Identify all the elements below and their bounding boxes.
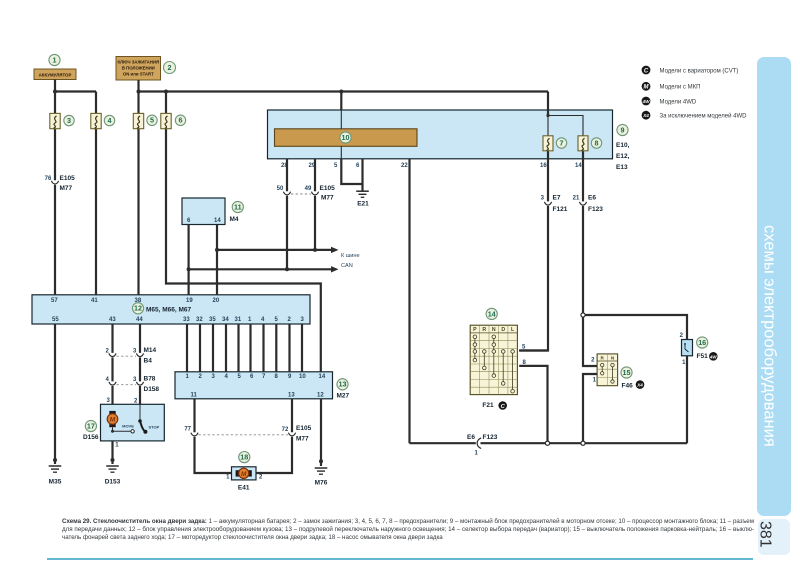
svg-text:1: 1 bbox=[53, 55, 57, 64]
svg-text:M76: M76 bbox=[315, 480, 328, 487]
svg-text:4: 4 bbox=[108, 116, 112, 125]
svg-text:13: 13 bbox=[288, 393, 295, 399]
svg-text:F123: F123 bbox=[588, 206, 603, 213]
svg-text:M14: M14 bbox=[144, 347, 157, 354]
svg-text:13: 13 bbox=[339, 380, 347, 389]
svg-text:15: 15 bbox=[623, 368, 631, 377]
svg-text:19: 19 bbox=[186, 298, 193, 304]
svg-text:E105: E105 bbox=[320, 185, 336, 192]
svg-text:M4: M4 bbox=[230, 216, 239, 223]
svg-text:P: P bbox=[473, 327, 477, 333]
svg-text:чатель фонарей света заднего х: чатель фонарей света заднего хода; 17 – … bbox=[62, 534, 443, 541]
svg-text:MOVE: MOVE bbox=[122, 424, 134, 429]
svg-text:11: 11 bbox=[234, 202, 242, 211]
svg-text:2: 2 bbox=[168, 63, 172, 72]
svg-text:M27: M27 bbox=[337, 393, 350, 400]
svg-text:D: D bbox=[501, 327, 505, 333]
svg-text:17: 17 bbox=[87, 421, 95, 430]
svg-text:4W: 4W bbox=[642, 99, 651, 104]
svg-text:44: 44 bbox=[136, 317, 143, 323]
svg-text:STOP: STOP bbox=[149, 425, 160, 430]
svg-text:33: 33 bbox=[183, 317, 190, 323]
svg-text:M77: M77 bbox=[296, 435, 309, 442]
svg-text:E41: E41 bbox=[238, 485, 250, 492]
svg-text:схемы электрооборудования: схемы электрооборудования bbox=[761, 225, 779, 447]
svg-text:57: 57 bbox=[51, 298, 58, 304]
svg-text:X4: X4 bbox=[636, 383, 643, 388]
svg-text:49: 49 bbox=[305, 186, 312, 192]
svg-text:16: 16 bbox=[540, 163, 547, 169]
svg-text:E105: E105 bbox=[60, 175, 76, 182]
svg-text:5: 5 bbox=[150, 116, 154, 125]
svg-text:C: C bbox=[644, 68, 649, 74]
svg-text:CAN: CAN bbox=[341, 263, 353, 269]
svg-text:B78: B78 bbox=[144, 375, 156, 382]
svg-text:E10,: E10, bbox=[616, 142, 630, 149]
svg-text:E105: E105 bbox=[296, 425, 312, 432]
svg-text:D153: D153 bbox=[105, 479, 121, 486]
svg-text:E6: E6 bbox=[467, 434, 475, 441]
svg-text:72: 72 bbox=[282, 427, 289, 433]
svg-text:E13: E13 bbox=[616, 164, 628, 171]
svg-text:В ПОЛОЖЕНИИ: В ПОЛОЖЕНИИ bbox=[122, 66, 155, 71]
svg-text:21: 21 bbox=[573, 195, 580, 201]
svg-text:F51: F51 bbox=[697, 353, 709, 360]
svg-text:M77: M77 bbox=[321, 195, 334, 202]
svg-text:7: 7 bbox=[560, 138, 564, 147]
svg-text:F121: F121 bbox=[553, 206, 568, 213]
svg-text:12: 12 bbox=[317, 393, 324, 399]
svg-text:381: 381 bbox=[757, 521, 774, 548]
svg-text:14: 14 bbox=[488, 309, 496, 318]
svg-text:10: 10 bbox=[342, 133, 350, 142]
svg-text:3: 3 bbox=[67, 116, 71, 125]
svg-text:КЛЮЧ ЗАЖИГАНИЯ: КЛЮЧ ЗАЖИГАНИЯ bbox=[118, 60, 160, 65]
svg-text:18: 18 bbox=[240, 453, 248, 462]
svg-text:M: M bbox=[241, 471, 247, 478]
svg-text:31: 31 bbox=[235, 317, 242, 323]
svg-text:16: 16 bbox=[698, 338, 706, 347]
svg-text:14: 14 bbox=[575, 163, 582, 169]
svg-text:M: M bbox=[110, 417, 116, 424]
svg-text:76: 76 bbox=[45, 176, 52, 182]
svg-text:М65, М66, М67: М65, М66, М67 bbox=[146, 307, 192, 314]
svg-text:43: 43 bbox=[109, 317, 116, 323]
svg-text:41: 41 bbox=[91, 298, 98, 304]
svg-text:6: 6 bbox=[179, 116, 183, 125]
svg-text:8: 8 bbox=[595, 138, 599, 147]
svg-text:50: 50 bbox=[277, 186, 284, 192]
svg-text:32: 32 bbox=[196, 317, 203, 323]
svg-text:B4: B4 bbox=[144, 358, 153, 365]
svg-text:55: 55 bbox=[52, 317, 59, 323]
svg-text:F123: F123 bbox=[483, 434, 498, 441]
svg-text:Модели с вариатором (CVT): Модели с вариатором (CVT) bbox=[660, 68, 739, 74]
svg-text:ON или START: ON или START bbox=[123, 72, 154, 77]
svg-text:для передачи данных; 12 – блок: для передачи данных; 12 – блок управлени… bbox=[62, 526, 754, 533]
svg-text:E7: E7 bbox=[553, 194, 561, 201]
svg-text:АККУМУЛЯТОР: АККУМУЛЯТОР bbox=[39, 73, 72, 78]
svg-text:4W: 4W bbox=[709, 354, 718, 359]
svg-text:Схема 29. Стеклоочиститель окн: Схема 29. Стеклоочиститель окна двери за… bbox=[62, 518, 754, 525]
svg-text:R: R bbox=[482, 327, 486, 333]
svg-text:22: 22 bbox=[401, 163, 408, 169]
svg-text:N: N bbox=[492, 327, 496, 333]
svg-text:10: 10 bbox=[299, 374, 306, 380]
svg-text:34: 34 bbox=[222, 317, 229, 323]
svg-text:X4: X4 bbox=[642, 113, 649, 118]
svg-text:35: 35 bbox=[209, 317, 216, 323]
svg-text:11: 11 bbox=[191, 393, 198, 399]
svg-text:9: 9 bbox=[621, 125, 625, 134]
svg-text:К шине: К шине bbox=[341, 253, 360, 259]
svg-text:14: 14 bbox=[214, 218, 221, 224]
svg-text:77: 77 bbox=[184, 427, 191, 433]
svg-text:D158: D158 bbox=[144, 386, 160, 393]
svg-text:F21: F21 bbox=[482, 402, 494, 409]
svg-text:14: 14 bbox=[319, 374, 326, 380]
svg-text:20: 20 bbox=[213, 298, 220, 304]
svg-text:E12,: E12, bbox=[616, 153, 630, 160]
svg-text:D156: D156 bbox=[83, 434, 99, 441]
svg-text:E21: E21 bbox=[357, 201, 369, 208]
svg-text:F46: F46 bbox=[622, 383, 634, 390]
svg-text:M35: M35 bbox=[49, 479, 62, 486]
svg-text:Модели 4WD: Модели 4WD bbox=[660, 99, 697, 105]
svg-text:Модели с МКП: Модели с МКП bbox=[660, 85, 701, 91]
svg-text:12: 12 bbox=[134, 304, 142, 313]
svg-text:E6: E6 bbox=[588, 194, 596, 201]
svg-text:За исключением моделей 4WD: За исключением моделей 4WD bbox=[660, 113, 748, 120]
svg-text:M77: M77 bbox=[60, 185, 73, 192]
